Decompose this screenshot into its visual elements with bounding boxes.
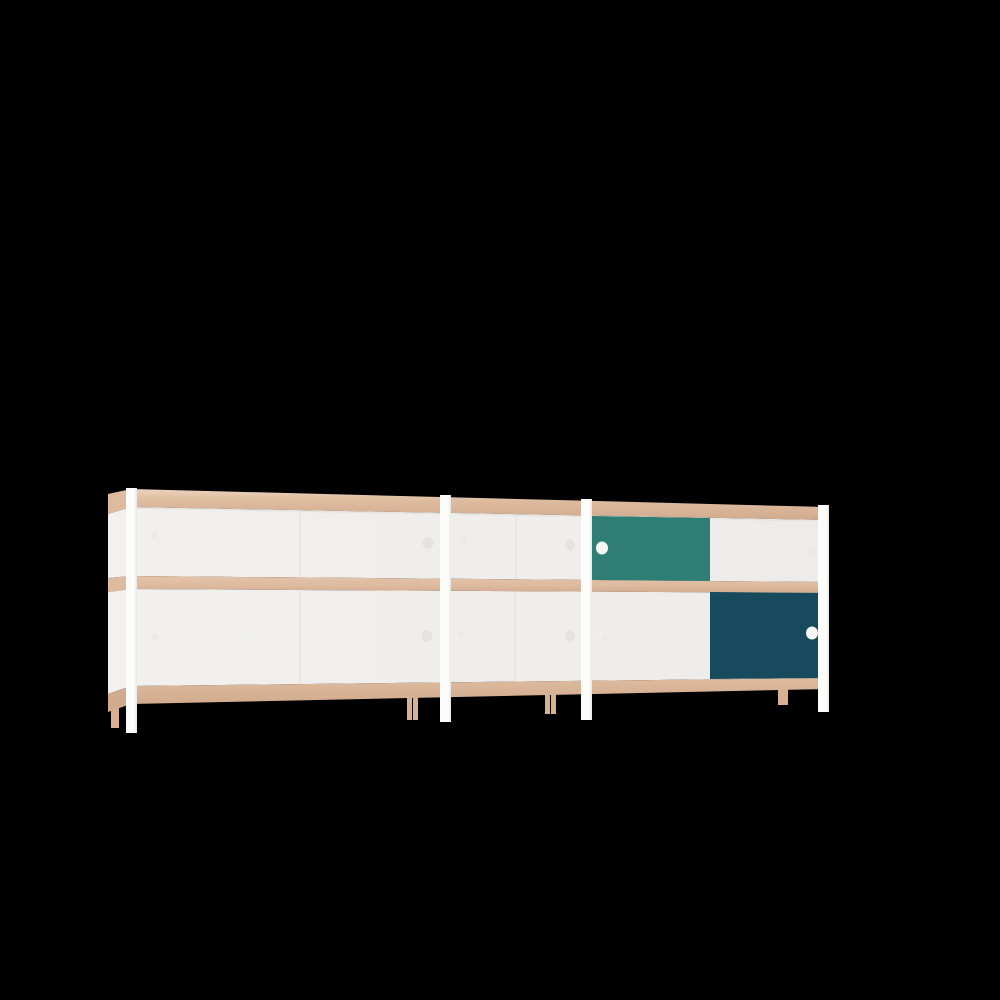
handle-module2-bottom-right (565, 631, 575, 642)
handle-module2-top-right (565, 540, 575, 551)
frame-post-junction1 (440, 495, 451, 722)
handle-module3-bottom-left (602, 634, 608, 641)
frame-post-junction2 (581, 499, 592, 720)
handle-teal-door (596, 542, 608, 555)
handle-module1-bottom-right (422, 630, 433, 642)
handle-module1-bottom-left (152, 633, 159, 641)
frame-post-right (818, 505, 829, 712)
handle-module1-top-left (152, 531, 159, 539)
frame-post-left (126, 488, 137, 733)
handle-module2-bottom-left (458, 631, 465, 639)
handle-module1-top-right (423, 537, 434, 549)
handle-petrol-door (806, 627, 818, 640)
handle-module2-top-left (460, 537, 467, 545)
teal-door (592, 516, 710, 581)
sideboard-render (0, 0, 1000, 1000)
handle-module3-top-right (808, 546, 817, 556)
